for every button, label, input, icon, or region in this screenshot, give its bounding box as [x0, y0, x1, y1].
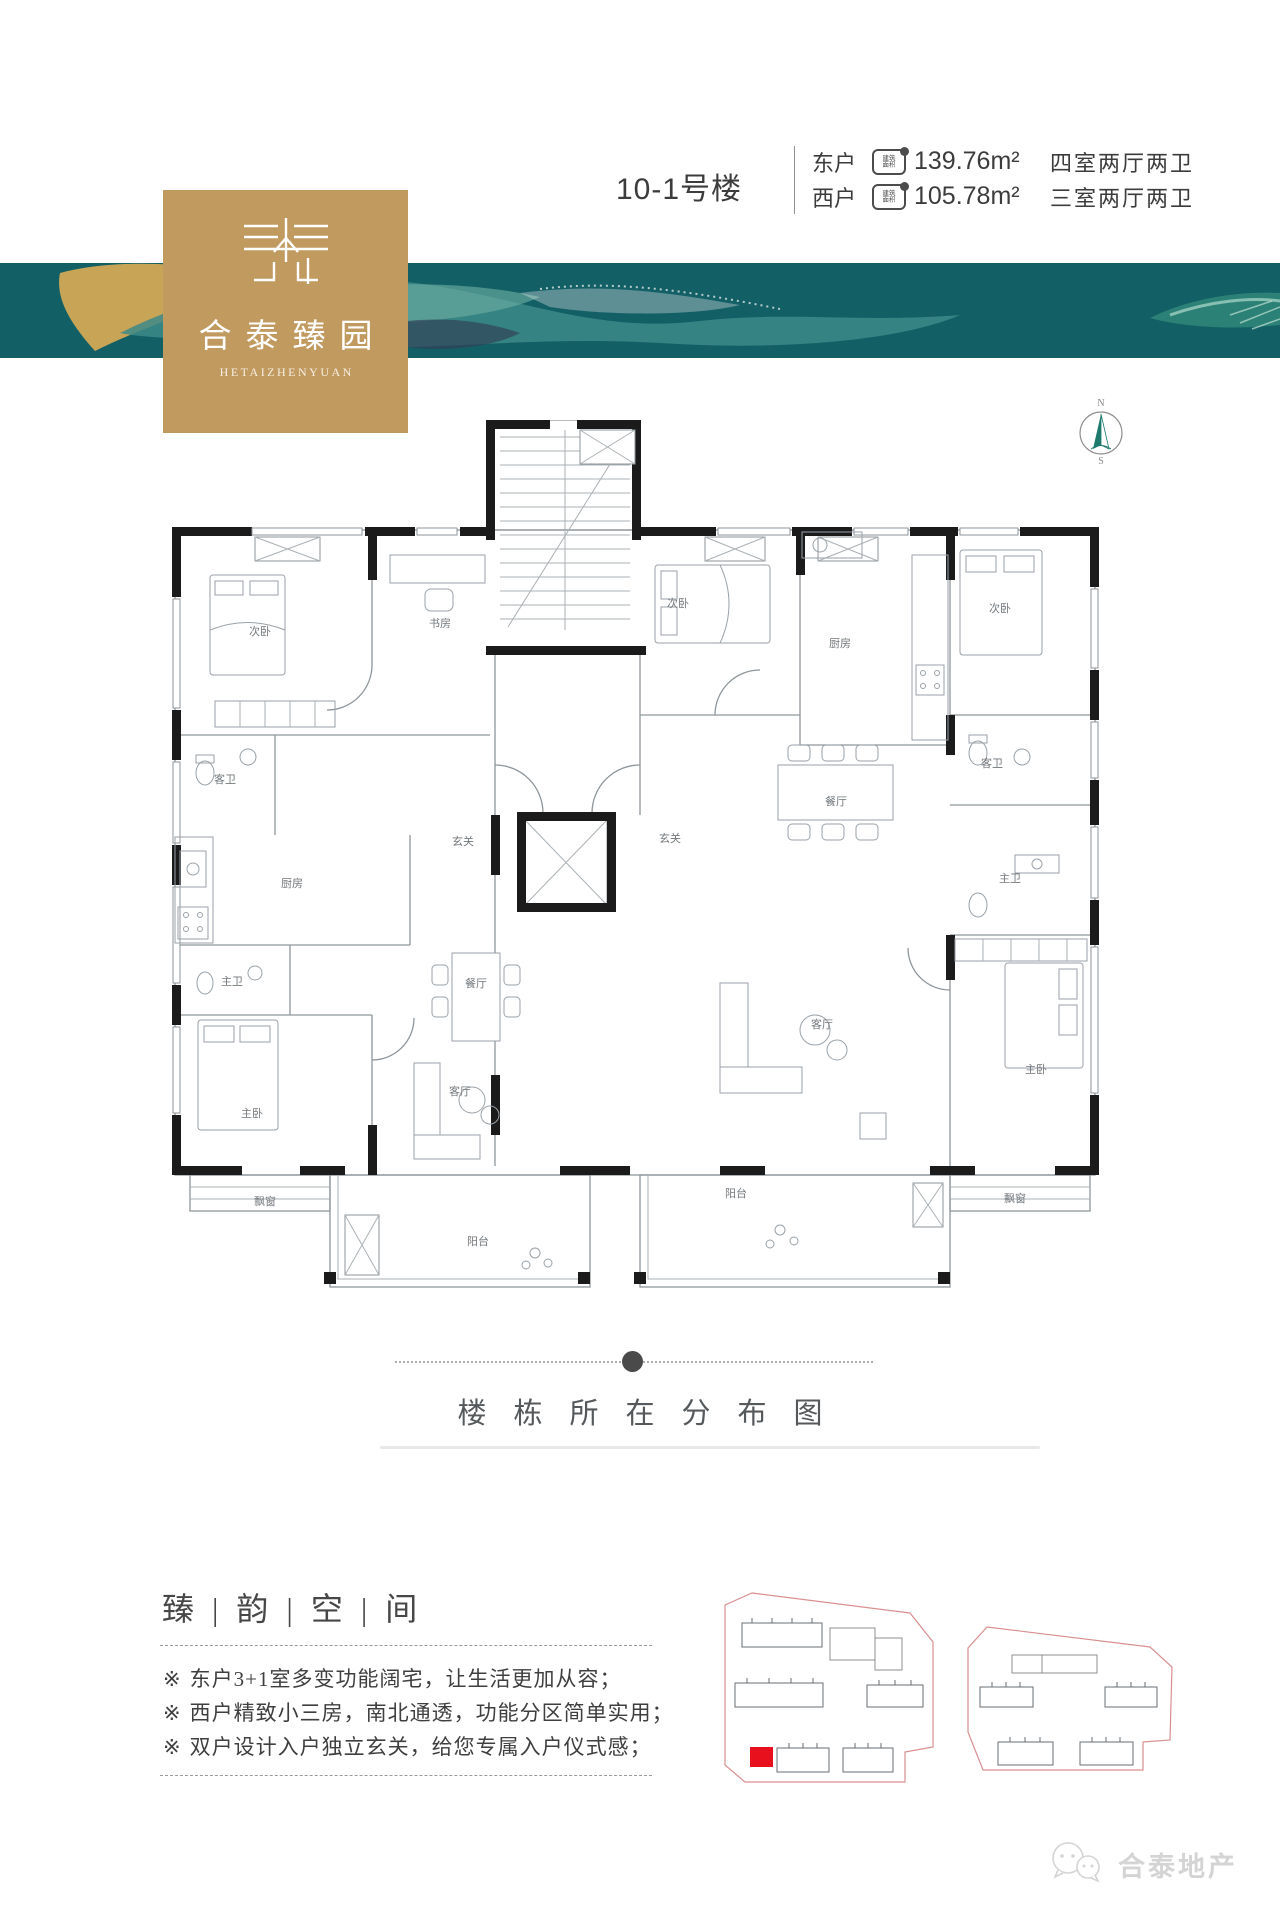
header-divider — [794, 146, 795, 214]
faint-divider — [380, 1446, 1040, 1449]
floorplan-poster: 10-1号楼 东户建筑面积139.76m²四室两厅两卫西户建筑面积105.78m… — [0, 0, 1280, 1920]
room-label: 玄关 — [659, 831, 681, 845]
distribution-dot — [622, 1351, 643, 1372]
footer-brand: 合泰地产 — [1048, 1840, 1238, 1888]
room-label: 客厅 — [449, 1084, 471, 1098]
building-number: 10-1号楼 — [616, 164, 742, 208]
room-label: 次卧 — [249, 624, 271, 638]
room-labels: 次卧书房客卫厨房玄关餐厅主卫主卧客厅飘窗阳台次卧厨房次卧客卫餐厅玄关主卫客厅主卧… — [214, 596, 1047, 1248]
room-label: 次卧 — [989, 601, 1011, 615]
feature-marker: ※ — [163, 1735, 182, 1759]
features-rule-bottom — [160, 1775, 652, 1776]
feature-marker: ※ — [163, 1667, 182, 1691]
room-label: 阳台 — [725, 1186, 747, 1200]
brand-logo-card: 合泰臻园 HETAIZHENYUAN — [163, 190, 408, 433]
room-label: 玄关 — [452, 834, 474, 848]
room-label: 飘窗 — [1004, 1191, 1026, 1205]
distribution-title: 楼栋所在分布图 — [0, 1390, 1280, 1432]
features-list: ※东户3+1室多变功能阔宅，让生活更加从容；※西户精致小三房，南北通透，功能分区… — [163, 1662, 683, 1764]
chat-bubbles-icon — [1048, 1840, 1112, 1888]
feature-item: ※东户3+1室多变功能阔宅，让生活更加从容； — [163, 1662, 683, 1696]
area-badge-icon: 建筑面积 — [872, 149, 906, 175]
room-label: 餐厅 — [465, 976, 487, 990]
footer-brand-text: 合泰地产 — [1118, 1845, 1238, 1884]
unit-area: 139.76m² — [914, 147, 1036, 176]
room-label: 主卫 — [221, 975, 243, 988]
unit-side: 东户 — [812, 146, 872, 178]
area-badge-icon: 建筑面积 — [872, 184, 906, 210]
room-label: 厨房 — [829, 637, 851, 650]
room-label: 次卧 — [667, 596, 689, 610]
floorplan-drawing: 次卧书房客卫厨房玄关餐厅主卫主卧客厅飘窗阳台次卧厨房次卧客卫餐厅玄关主卫客厅主卧… — [160, 420, 1105, 1310]
unit-rooms: 三室两厅两卫 — [1050, 181, 1194, 213]
unit-rooms: 四室两厅两卫 — [1050, 146, 1194, 178]
brand-name-latin: HETAIZHENYUAN — [217, 365, 354, 380]
unit-spec-table: 东户建筑面积139.76m²四室两厅两卫西户建筑面积105.78m²三室两厅两卫 — [812, 144, 1194, 214]
room-label: 阳台 — [467, 1234, 489, 1248]
room-label: 厨房 — [281, 877, 303, 890]
tai-monogram-icon — [240, 216, 332, 293]
room-label: 餐厅 — [825, 794, 847, 808]
unit-spec-row: 西户建筑面积105.78m²三室两厅两卫 — [812, 179, 1194, 214]
unit-spec-row: 东户建筑面积139.76m²四室两厅两卫 — [812, 144, 1194, 179]
room-label: 客卫 — [214, 772, 236, 786]
room-label: 客厅 — [811, 1017, 833, 1031]
compass-north-label: N — [1097, 398, 1104, 409]
room-label: 主卫 — [999, 872, 1021, 885]
feature-item: ※西户精致小三房，南北通透，功能分区简单实用； — [163, 1696, 683, 1730]
room-label: 主卧 — [241, 1107, 263, 1120]
highlighted-building-10-1 — [750, 1747, 773, 1767]
room-label: 书房 — [429, 617, 451, 630]
room-label: 主卧 — [1025, 1063, 1047, 1076]
room-label: 客卫 — [981, 756, 1003, 770]
feature-item: ※双户设计入户独立玄关，给您专属入户仪式感； — [163, 1730, 683, 1764]
feature-marker: ※ — [163, 1701, 182, 1725]
brand-name: 合泰臻园 — [185, 309, 387, 357]
room-label: 飘窗 — [254, 1194, 276, 1208]
siteplan-map — [715, 1575, 1190, 1800]
features-rule-top — [160, 1645, 652, 1646]
unit-area: 105.78m² — [914, 182, 1036, 211]
unit-side: 西户 — [812, 181, 872, 213]
features-title: 臻 | 韵 | 空 | 间 — [162, 1584, 422, 1630]
siteplan-buildings — [735, 1618, 1157, 1772]
